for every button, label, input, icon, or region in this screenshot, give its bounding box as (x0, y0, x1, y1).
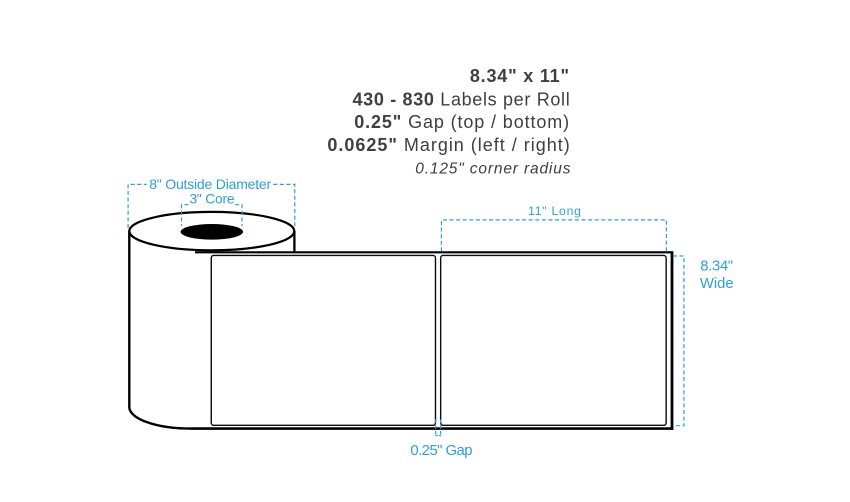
svg-text:8.34" x 11": 8.34" x 11" (470, 66, 570, 86)
svg-text:0.25" Gap (top / bottom): 0.25" Gap (top / bottom) (354, 112, 570, 132)
svg-text:Wide: Wide (700, 276, 734, 292)
svg-text:3" Core: 3" Core (189, 192, 234, 207)
svg-text:0.25" Gap: 0.25" Gap (410, 443, 472, 459)
svg-text:430 - 830 Labels per Roll: 430 - 830 Labels per Roll (353, 89, 571, 109)
svg-text:11" Long: 11" Long (528, 204, 581, 218)
svg-text:0.125" corner radius: 0.125" corner radius (415, 161, 571, 178)
svg-text:8.34": 8.34" (700, 259, 733, 275)
svg-text:0.0625" Margin (left / right): 0.0625" Margin (left / right) (327, 135, 570, 155)
svg-text:8" Outside Diameter: 8" Outside Diameter (149, 176, 271, 192)
